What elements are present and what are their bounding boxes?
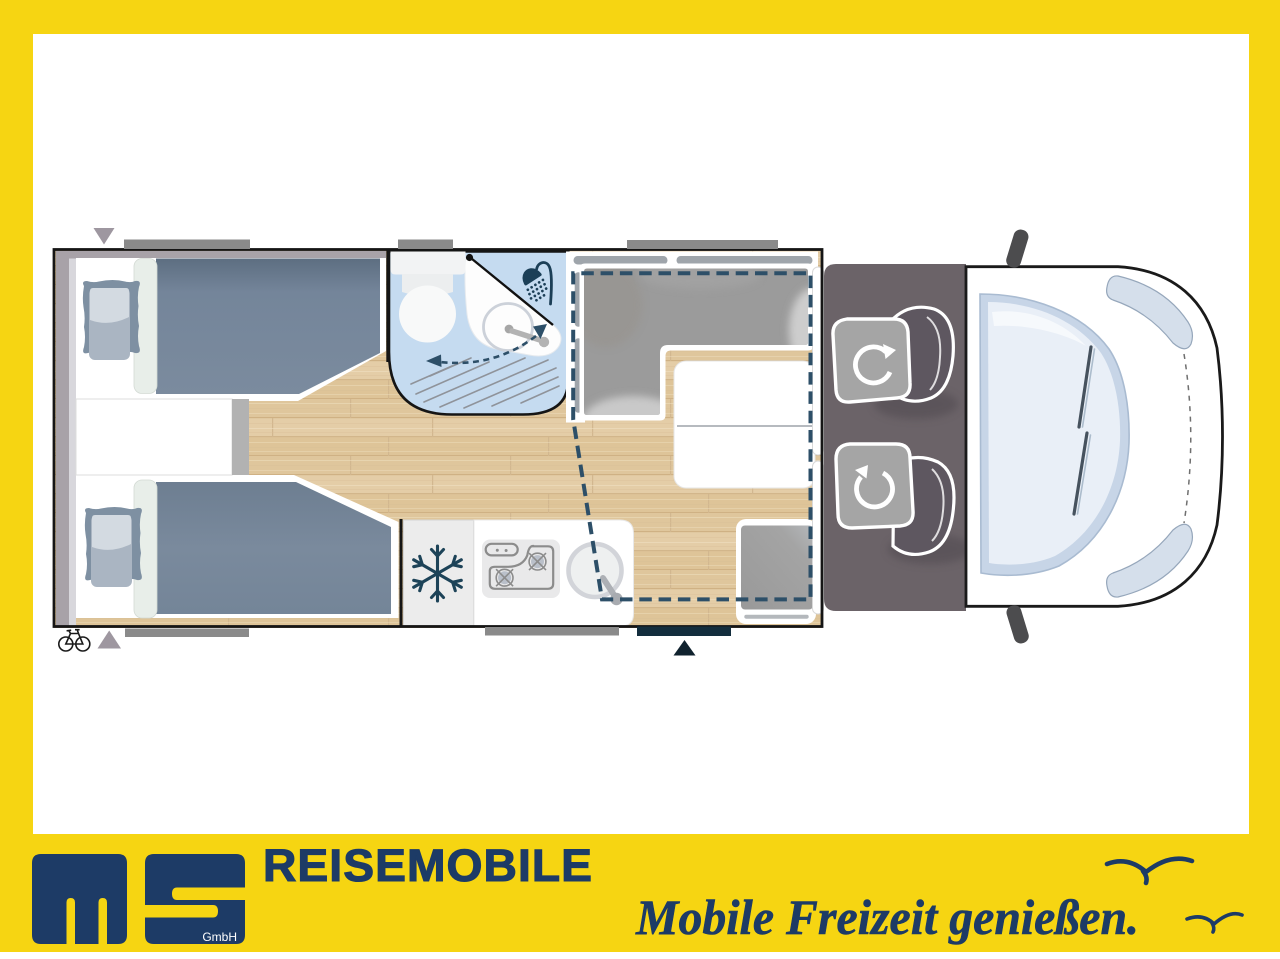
svg-text:REISEMOBILE: REISEMOBILE (263, 840, 593, 891)
svg-text:GmbH: GmbH (202, 930, 237, 944)
svg-text:Mobile Freizeit genießen.: Mobile Freizeit genießen. (635, 889, 1139, 945)
